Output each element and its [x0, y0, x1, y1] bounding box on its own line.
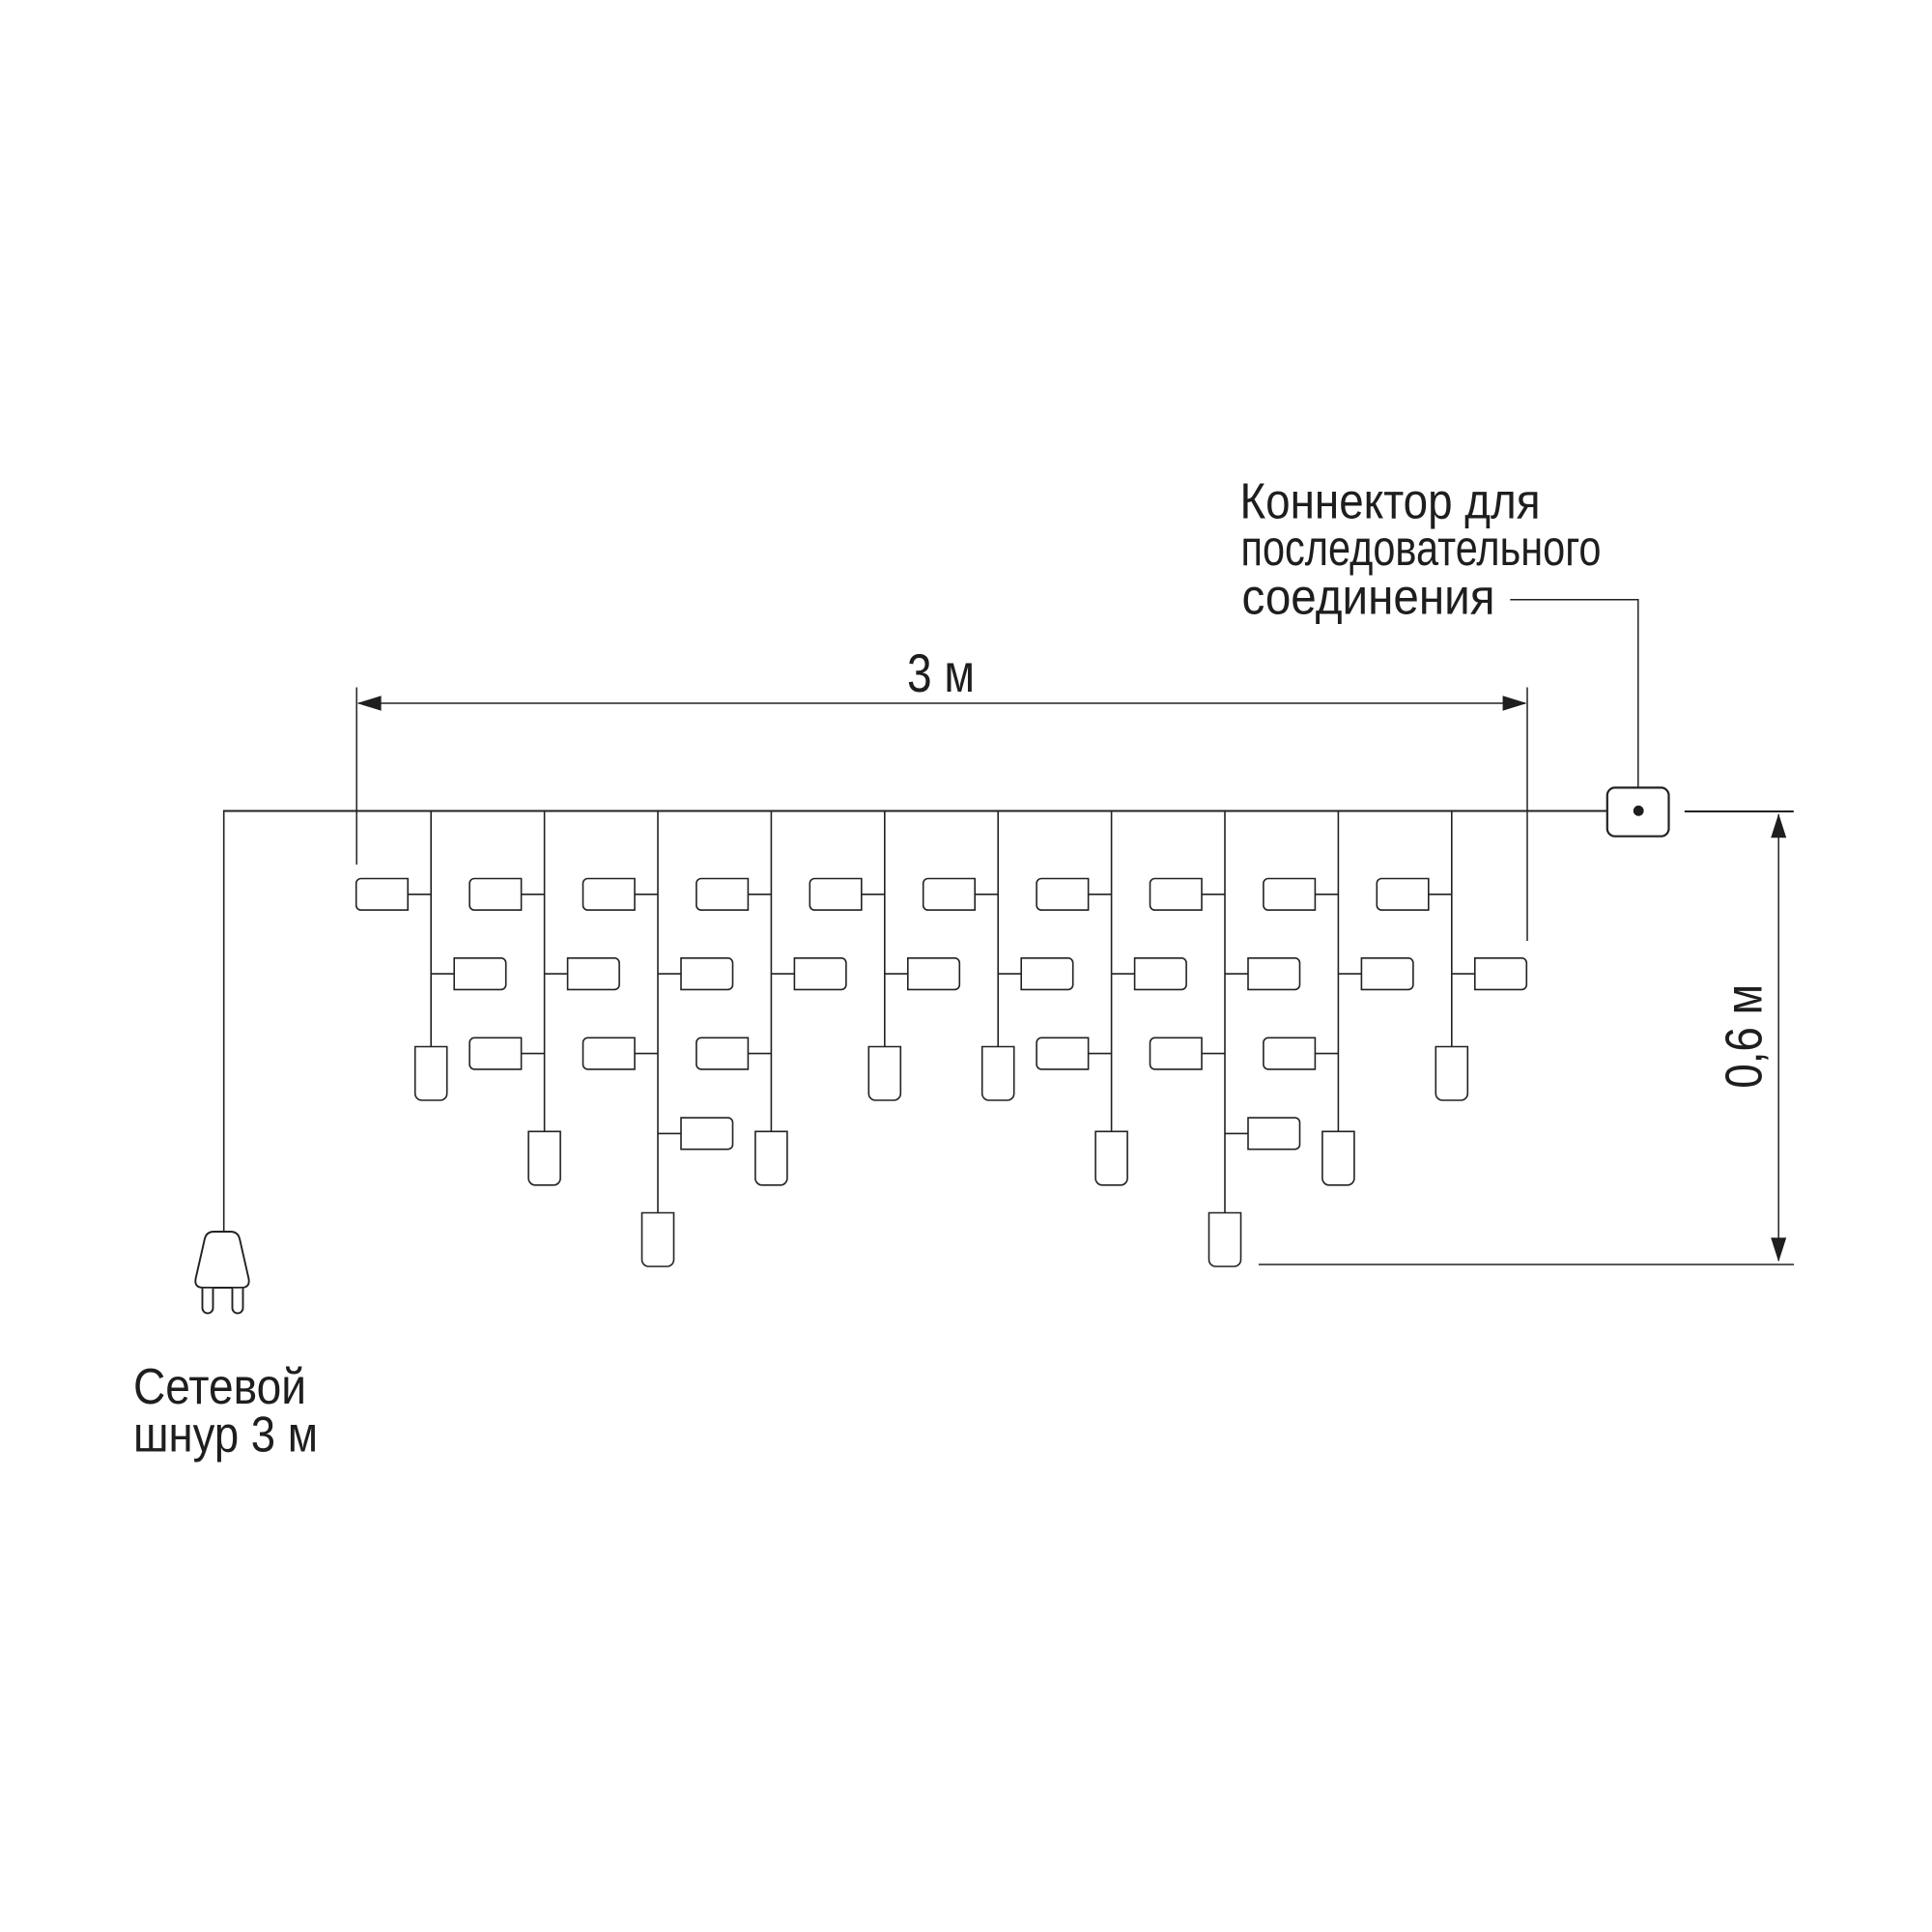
svg-text:последовательного: последовательного	[1241, 521, 1602, 577]
svg-text:0,6 м: 0,6 м	[1716, 984, 1774, 1089]
svg-text:шнур 3 м: шнур 3 м	[133, 1406, 318, 1463]
svg-text:3 м: 3 м	[907, 642, 975, 703]
svg-text:соединения: соединения	[1242, 569, 1495, 625]
